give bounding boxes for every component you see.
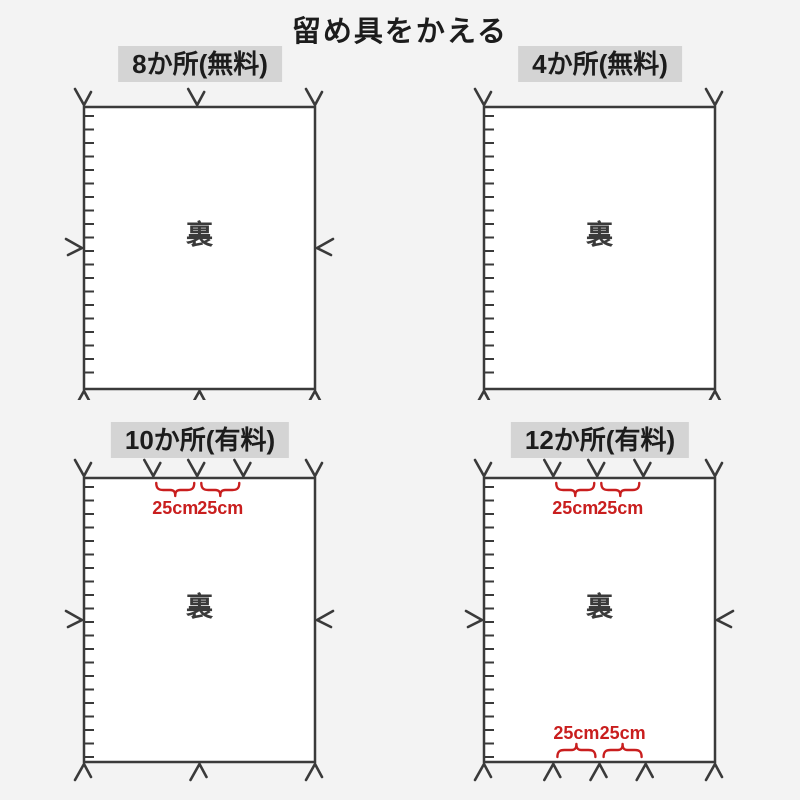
fastener-mark-icon	[591, 764, 607, 780]
fastener-mark-icon	[637, 764, 653, 780]
fastener-mark-icon	[466, 611, 482, 627]
measure-label: 25cm	[600, 723, 646, 743]
cover-diagram-4-places: 裏	[400, 0, 800, 400]
back-side-label: 裏	[585, 219, 614, 250]
back-side-label: 裏	[185, 219, 214, 250]
cover-diagram-10-places: 裏25cm25cm	[0, 400, 400, 800]
fastener-mark-icon	[234, 460, 250, 476]
fastener-mark-icon	[306, 764, 322, 780]
fastener-mark-icon	[717, 611, 733, 627]
fastener-mark-icon	[191, 391, 207, 400]
measure-label: 25cm	[552, 498, 598, 518]
fastener-mark-icon	[475, 764, 491, 780]
measure-label: 25cm	[197, 498, 243, 518]
fastener-mark-icon	[706, 89, 722, 105]
fastener-mark-icon	[306, 391, 322, 400]
fastener-mark-icon	[634, 460, 650, 476]
fastener-mark-icon	[66, 239, 82, 255]
fastener-mark-icon	[475, 89, 491, 105]
fastener-mark-icon	[317, 611, 333, 627]
fastener-mark-icon	[306, 460, 322, 476]
fastener-mark-icon	[188, 89, 204, 105]
panel-10-places-paid: 10か所(有料) 裏25cm25cm	[0, 400, 400, 800]
fastener-mark-icon	[75, 391, 91, 400]
fastener-mark-icon	[188, 460, 204, 476]
fastener-mark-icon	[75, 764, 91, 780]
cover-diagram-8-places: 裏	[0, 0, 400, 400]
fastener-mark-icon	[475, 391, 491, 400]
fastener-mark-icon	[475, 460, 491, 476]
fastener-mark-icon	[144, 460, 160, 476]
back-side-label: 裏	[585, 591, 614, 622]
fastener-mark-icon	[191, 764, 207, 780]
panel-4-places-free: 4か所(無料) 裏	[400, 0, 800, 400]
fastener-mark-icon	[706, 764, 722, 780]
measure-label: 25cm	[152, 498, 198, 518]
fastener-mark-icon	[75, 460, 91, 476]
fastener-options-diagram: 留め具をかえる 8か所(無料) 裏 4か所(無料) 裏 10か所(有料) 裏25…	[0, 0, 800, 800]
measure-label: 25cm	[553, 723, 599, 743]
zipper-ticks-icon	[85, 487, 94, 757]
measure-label: 25cm	[597, 498, 643, 518]
fastener-mark-icon	[544, 764, 560, 780]
fastener-mark-icon	[317, 239, 333, 255]
fastener-mark-icon	[66, 611, 82, 627]
back-side-label: 裏	[185, 591, 214, 622]
fastener-mark-icon	[706, 460, 722, 476]
zipper-ticks-icon	[485, 487, 494, 757]
cover-diagram-12-places: 裏25cm25cm25cm25cm	[400, 400, 800, 800]
fastener-mark-icon	[306, 89, 322, 105]
fastener-mark-icon	[544, 460, 560, 476]
panel-12-places-paid: 12か所(有料) 裏25cm25cm25cm25cm	[400, 400, 800, 800]
panel-8-places-free: 8か所(無料) 裏	[0, 0, 400, 400]
fastener-mark-icon	[706, 391, 722, 400]
fastener-mark-icon	[588, 460, 604, 476]
fastener-mark-icon	[75, 89, 91, 105]
